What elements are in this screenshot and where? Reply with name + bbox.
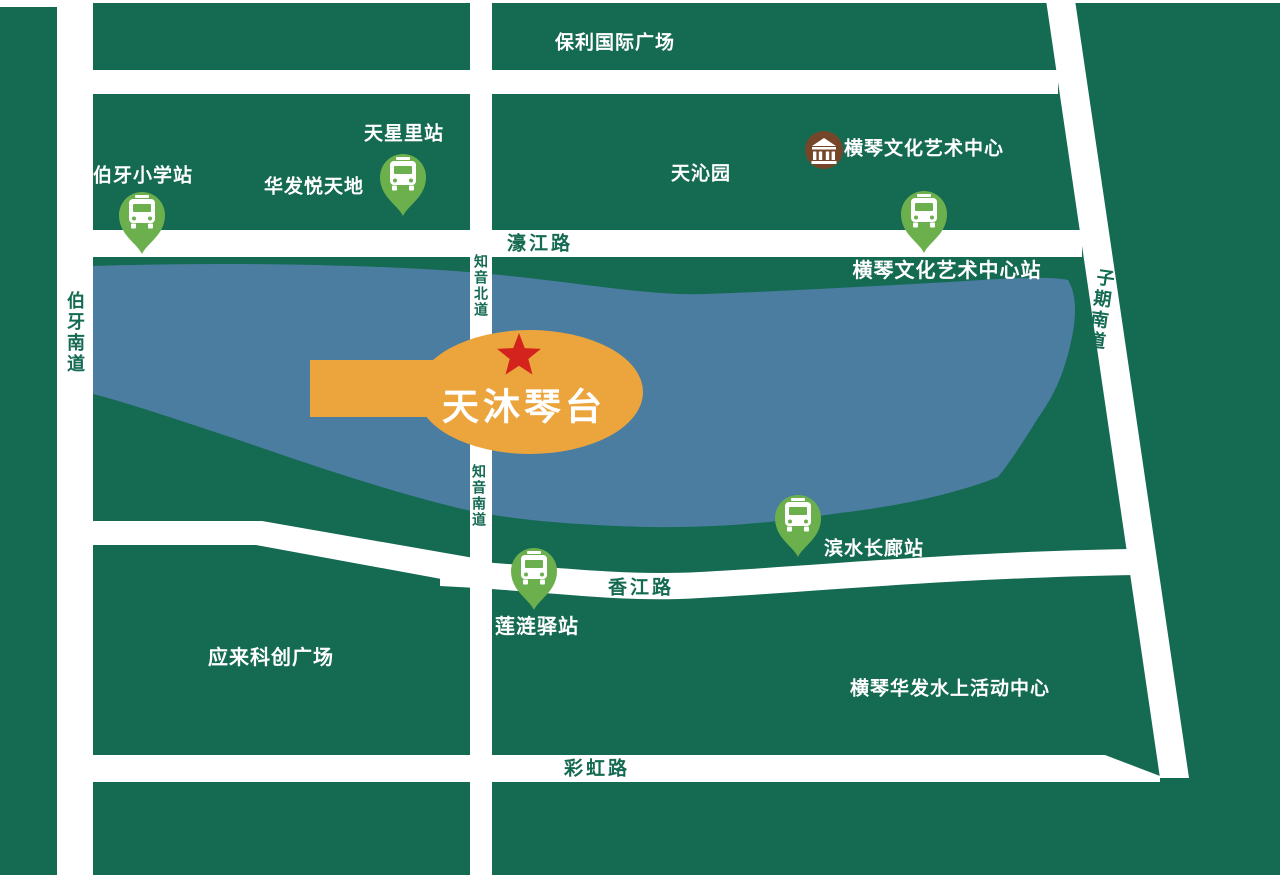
bus-stop-label-art-center-station: 横琴文化艺术中心站 [853,261,1042,281]
land-west-strip [0,7,57,875]
landmark-label-art-center: 横琴文化艺术中心 [844,140,1004,159]
bus-stop-label-binshui: 滨水长廊站 [824,540,924,559]
bus-stop-label-tianxingli: 天星里站 [364,125,444,144]
road-label-zhiyin-south: 知音南道 [472,464,486,528]
road-label-caihong: 彩虹路 [564,760,630,779]
road-label-haojiang: 濠江路 [507,235,573,254]
road-label-zhiyin-north: 知音北道 [474,254,488,318]
road-label-boya-south: 伯牙南道 [66,291,84,375]
landmark-label-tianqinyuan: 天沁园 [671,165,731,184]
bus-stop-pin-tianxingli [373,152,433,232]
bus-stop-label-lianlian: 莲涟驿站 [495,617,579,637]
museum-icon [802,128,846,172]
bus-stop-label-boya-school: 伯牙小学站 [93,167,193,186]
destination-label: 天沐琴台 [442,389,606,426]
road-boya-south [58,0,92,875]
bus-stop-pin-boya-school [112,190,172,270]
landmark-label-yinglai: 应来科创广场 [208,648,334,668]
landmark-label-huafa: 华发悦天地 [264,178,364,197]
road-label-xiangjiang: 香江路 [608,579,674,598]
bus-stop-pin-lianlian [504,546,564,626]
bus-stop-pin-art-center [894,189,954,269]
bus-stop-pin-binshui [768,493,828,573]
map-canvas [0,0,1280,875]
landmark-label-water-center: 横琴华发水上活动中心 [850,680,1050,699]
landmark-label-poly-plaza: 保利国际广场 [555,34,675,53]
road-top [58,70,1058,94]
